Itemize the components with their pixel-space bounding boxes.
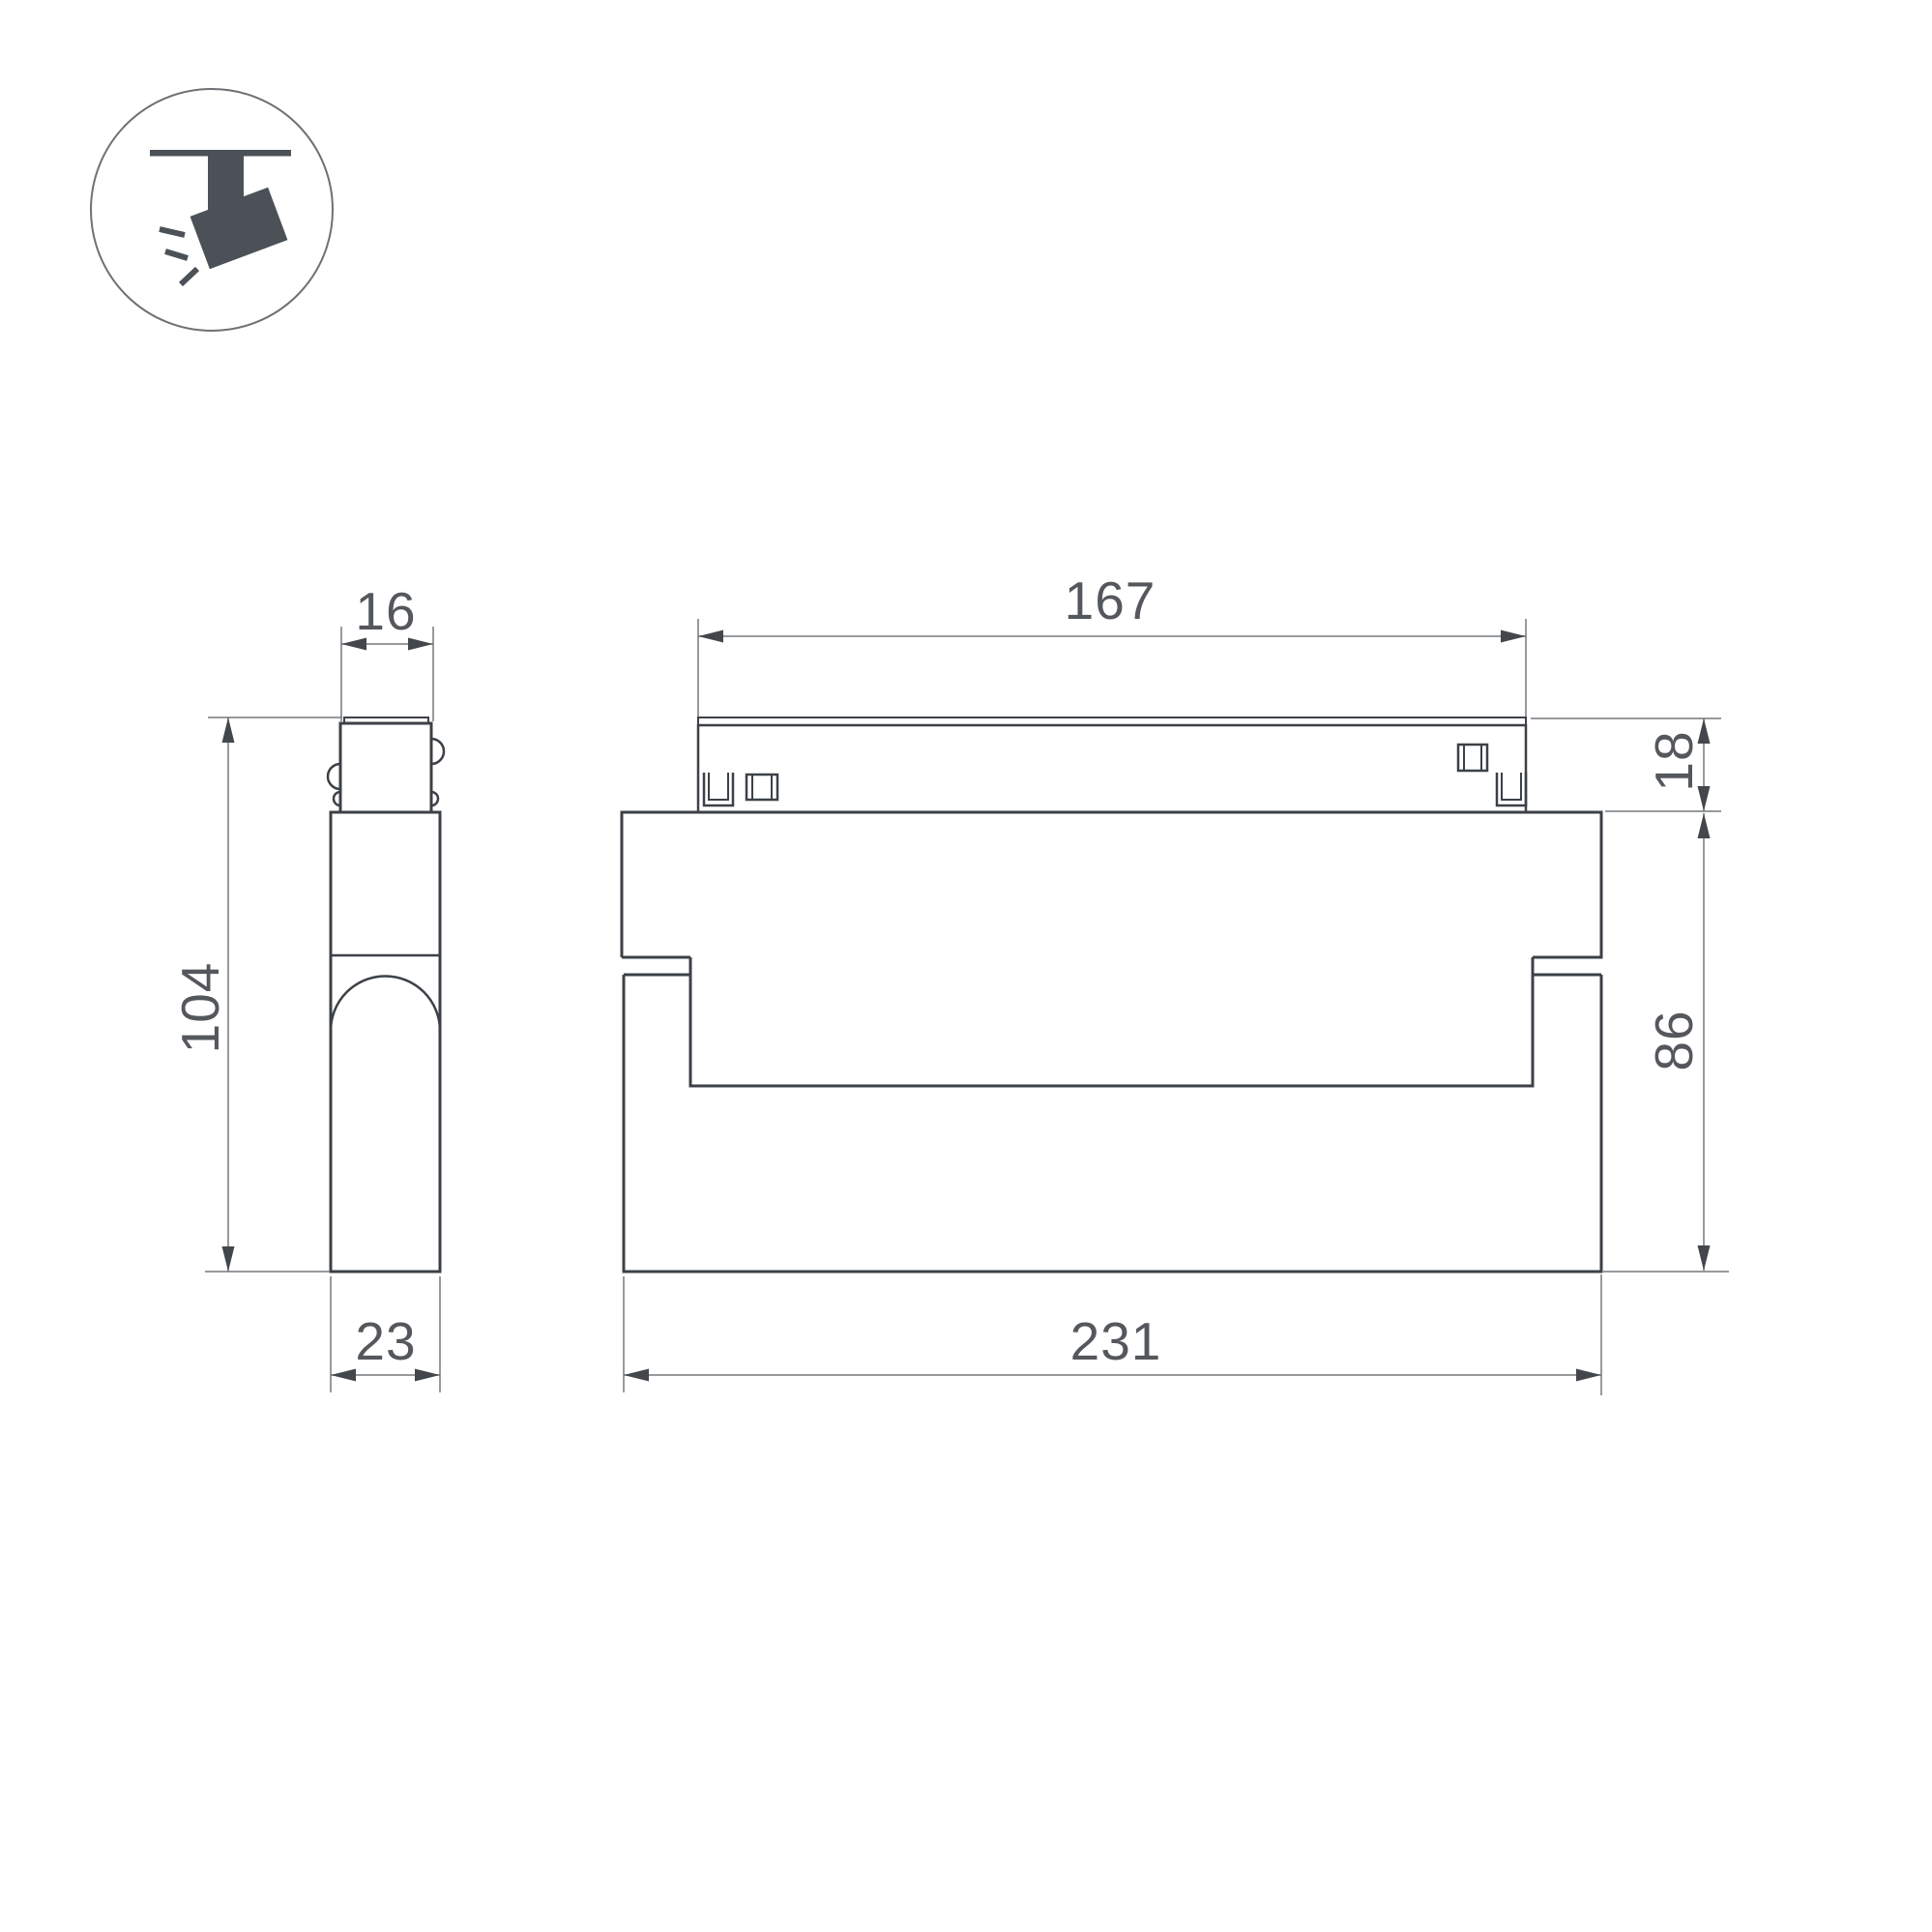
arrowhead-left xyxy=(331,1369,356,1382)
front-housing-outline xyxy=(622,812,1601,1272)
front-clip-u-left-inner xyxy=(709,773,728,800)
dimension-label-track-height: 18 xyxy=(1644,730,1704,791)
dimension-label-total-length: 231 xyxy=(1070,1311,1162,1371)
dimension-label-track-length: 167 xyxy=(1065,571,1156,630)
arrowhead-bottom xyxy=(222,1246,235,1272)
track-spotlight-icon xyxy=(91,89,333,331)
front-view xyxy=(622,717,1601,1272)
side-neck xyxy=(340,723,431,812)
dimension-side-depth: 23 xyxy=(331,1276,440,1392)
dimension-label-neck-width: 16 xyxy=(355,581,416,641)
arrowhead-right xyxy=(415,1369,440,1382)
arrowhead-left xyxy=(698,630,723,643)
drawing-page: 16 104 23 167 xyxy=(0,0,1932,1932)
dimension-total-length: 231 xyxy=(624,1274,1601,1395)
dimension-neck-width: 16 xyxy=(341,581,433,721)
dimension-label-body-height: 86 xyxy=(1644,1010,1704,1070)
dimension-body-height: 86 xyxy=(1603,813,1729,1272)
front-clip-square-left xyxy=(746,775,777,800)
dimension-track-height: 18 xyxy=(1531,718,1721,811)
side-view xyxy=(328,717,444,1272)
dimension-label-side-height: 104 xyxy=(170,962,230,1054)
side-hinge-arch xyxy=(331,977,440,1032)
side-clip-bump-left-large xyxy=(328,764,340,789)
side-body xyxy=(331,812,440,1272)
front-track-body xyxy=(698,725,1526,812)
arrowhead-top xyxy=(222,717,235,743)
arrowhead-top xyxy=(1698,813,1711,838)
dimension-label-side-depth: 23 xyxy=(355,1311,416,1371)
arrowhead-right xyxy=(1501,630,1526,643)
dimension-track-length: 167 xyxy=(698,571,1526,717)
front-clip-u-right-inner xyxy=(1502,773,1521,800)
dimension-side-height: 104 xyxy=(170,717,342,1272)
front-clip-square-right xyxy=(1458,745,1487,771)
arrowhead-left xyxy=(624,1369,649,1382)
icon-track-bar xyxy=(150,150,291,157)
arrowhead-right xyxy=(1576,1369,1601,1382)
side-clip-bump-right-large xyxy=(431,739,444,764)
arrowhead-bottom xyxy=(1698,1245,1711,1271)
technical-drawing-canvas: 16 104 23 167 xyxy=(0,0,1932,1932)
